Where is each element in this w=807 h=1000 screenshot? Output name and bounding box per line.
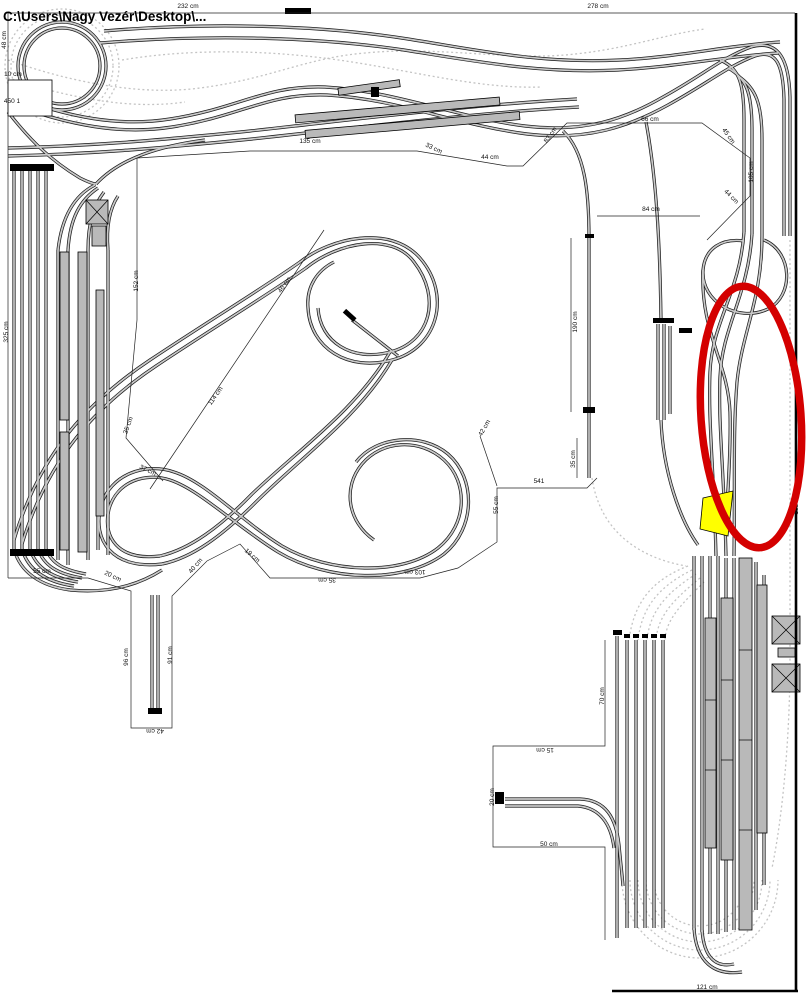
dimension-label: 450 1 (4, 98, 21, 105)
dimension-label: 20 cm (103, 570, 122, 584)
dimension-label: 70 cm (599, 687, 606, 705)
track-plan-canvas[interactable]: 232 cm278 cm48 cm10 cm450 1325 cm135 cm3… (0, 0, 807, 1000)
dimension-label: 66 cm (641, 116, 659, 123)
dimension-label: 91 cm (167, 646, 174, 664)
dimension-label: 84 cm (642, 206, 660, 213)
dimension-label: 44 cm (722, 188, 739, 205)
dimension-label: 55 cm (33, 568, 51, 575)
dimension-label: 105 cm (748, 161, 755, 182)
visible-tracks (8, 22, 790, 973)
dimension-label: 135 cm (299, 138, 320, 145)
dimension-label: 35 cm (570, 450, 577, 468)
dimension-label: 50 cm (540, 841, 558, 848)
dimension-label: 96 cm (123, 648, 130, 666)
dimension-label: 48 cm (1, 31, 8, 49)
dimension-label: 55 cm (493, 496, 500, 514)
platforms (8, 80, 800, 930)
file-path-title: C:\Users\Nagy Vezér\Desktop\... (3, 9, 206, 24)
track-plan-window: C:\Users\Nagy Vezér\Desktop\... (0, 0, 807, 1000)
dimension-label: 20 cm (489, 788, 496, 806)
dimension-label: 152 cm (133, 270, 140, 291)
dimension-label: 45 cm (720, 127, 736, 146)
dimension-label: 103 cm (404, 568, 425, 575)
dimension-label: 541 (534, 478, 545, 485)
dimension-label: 15 cm (536, 746, 554, 753)
dimension-label: 35 cm (318, 576, 336, 583)
dimension-label: 44 cm (481, 154, 499, 161)
dimension-label: 114 cm (207, 386, 225, 407)
dimension-label: 35 cm (122, 416, 135, 435)
dimension-label: 42 cm (477, 419, 492, 438)
dimension-label: 42 cm (146, 727, 164, 734)
dimension-label: 10 cm (4, 71, 22, 78)
dimension-label: 325 cm (3, 321, 10, 342)
dimension-label: 278 cm (587, 3, 608, 10)
dimension-label: 37 cm (138, 464, 157, 478)
dimension-label: 121 cm (696, 984, 717, 991)
dimension-label: 190 cm (572, 311, 579, 332)
dimension-label: 19 cm (243, 547, 261, 564)
